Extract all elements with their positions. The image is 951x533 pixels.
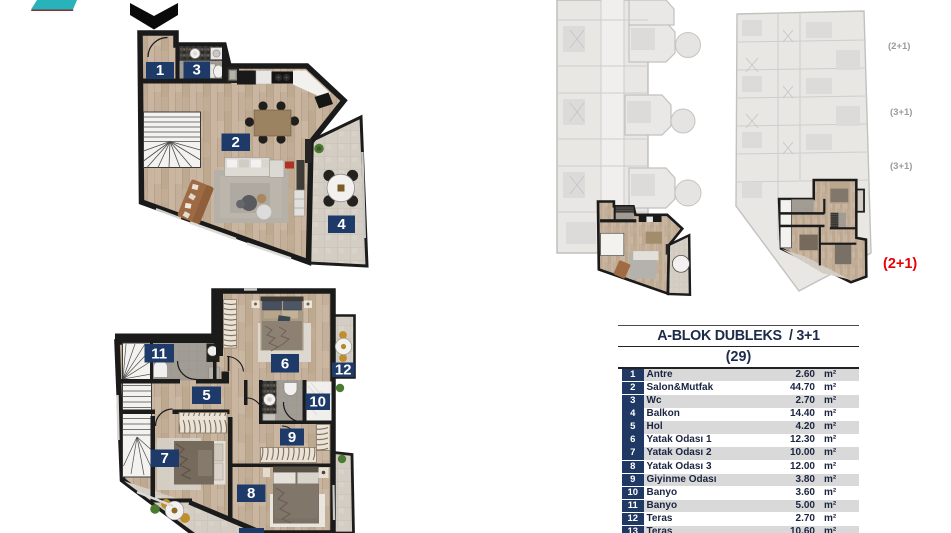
svg-text:5: 5 — [202, 387, 210, 404]
svg-text:3: 3 — [193, 62, 201, 79]
svg-text:(3+1): (3+1) — [890, 161, 912, 172]
svg-text:1: 1 — [156, 62, 164, 79]
svg-text:9: 9 — [288, 429, 296, 446]
svg-text:(3+1): (3+1) — [890, 107, 912, 118]
svg-text:8: 8 — [247, 485, 255, 502]
svg-text:2: 2 — [232, 134, 240, 151]
svg-text:11: 11 — [151, 345, 167, 362]
svg-text:(2+1): (2+1) — [883, 256, 917, 272]
svg-text:7: 7 — [161, 450, 169, 467]
svg-text:12: 12 — [335, 361, 352, 378]
svg-text:(2+1): (2+1) — [888, 41, 910, 52]
svg-text:10: 10 — [309, 394, 326, 411]
svg-text:6: 6 — [281, 355, 289, 372]
svg-text:4: 4 — [337, 216, 346, 233]
